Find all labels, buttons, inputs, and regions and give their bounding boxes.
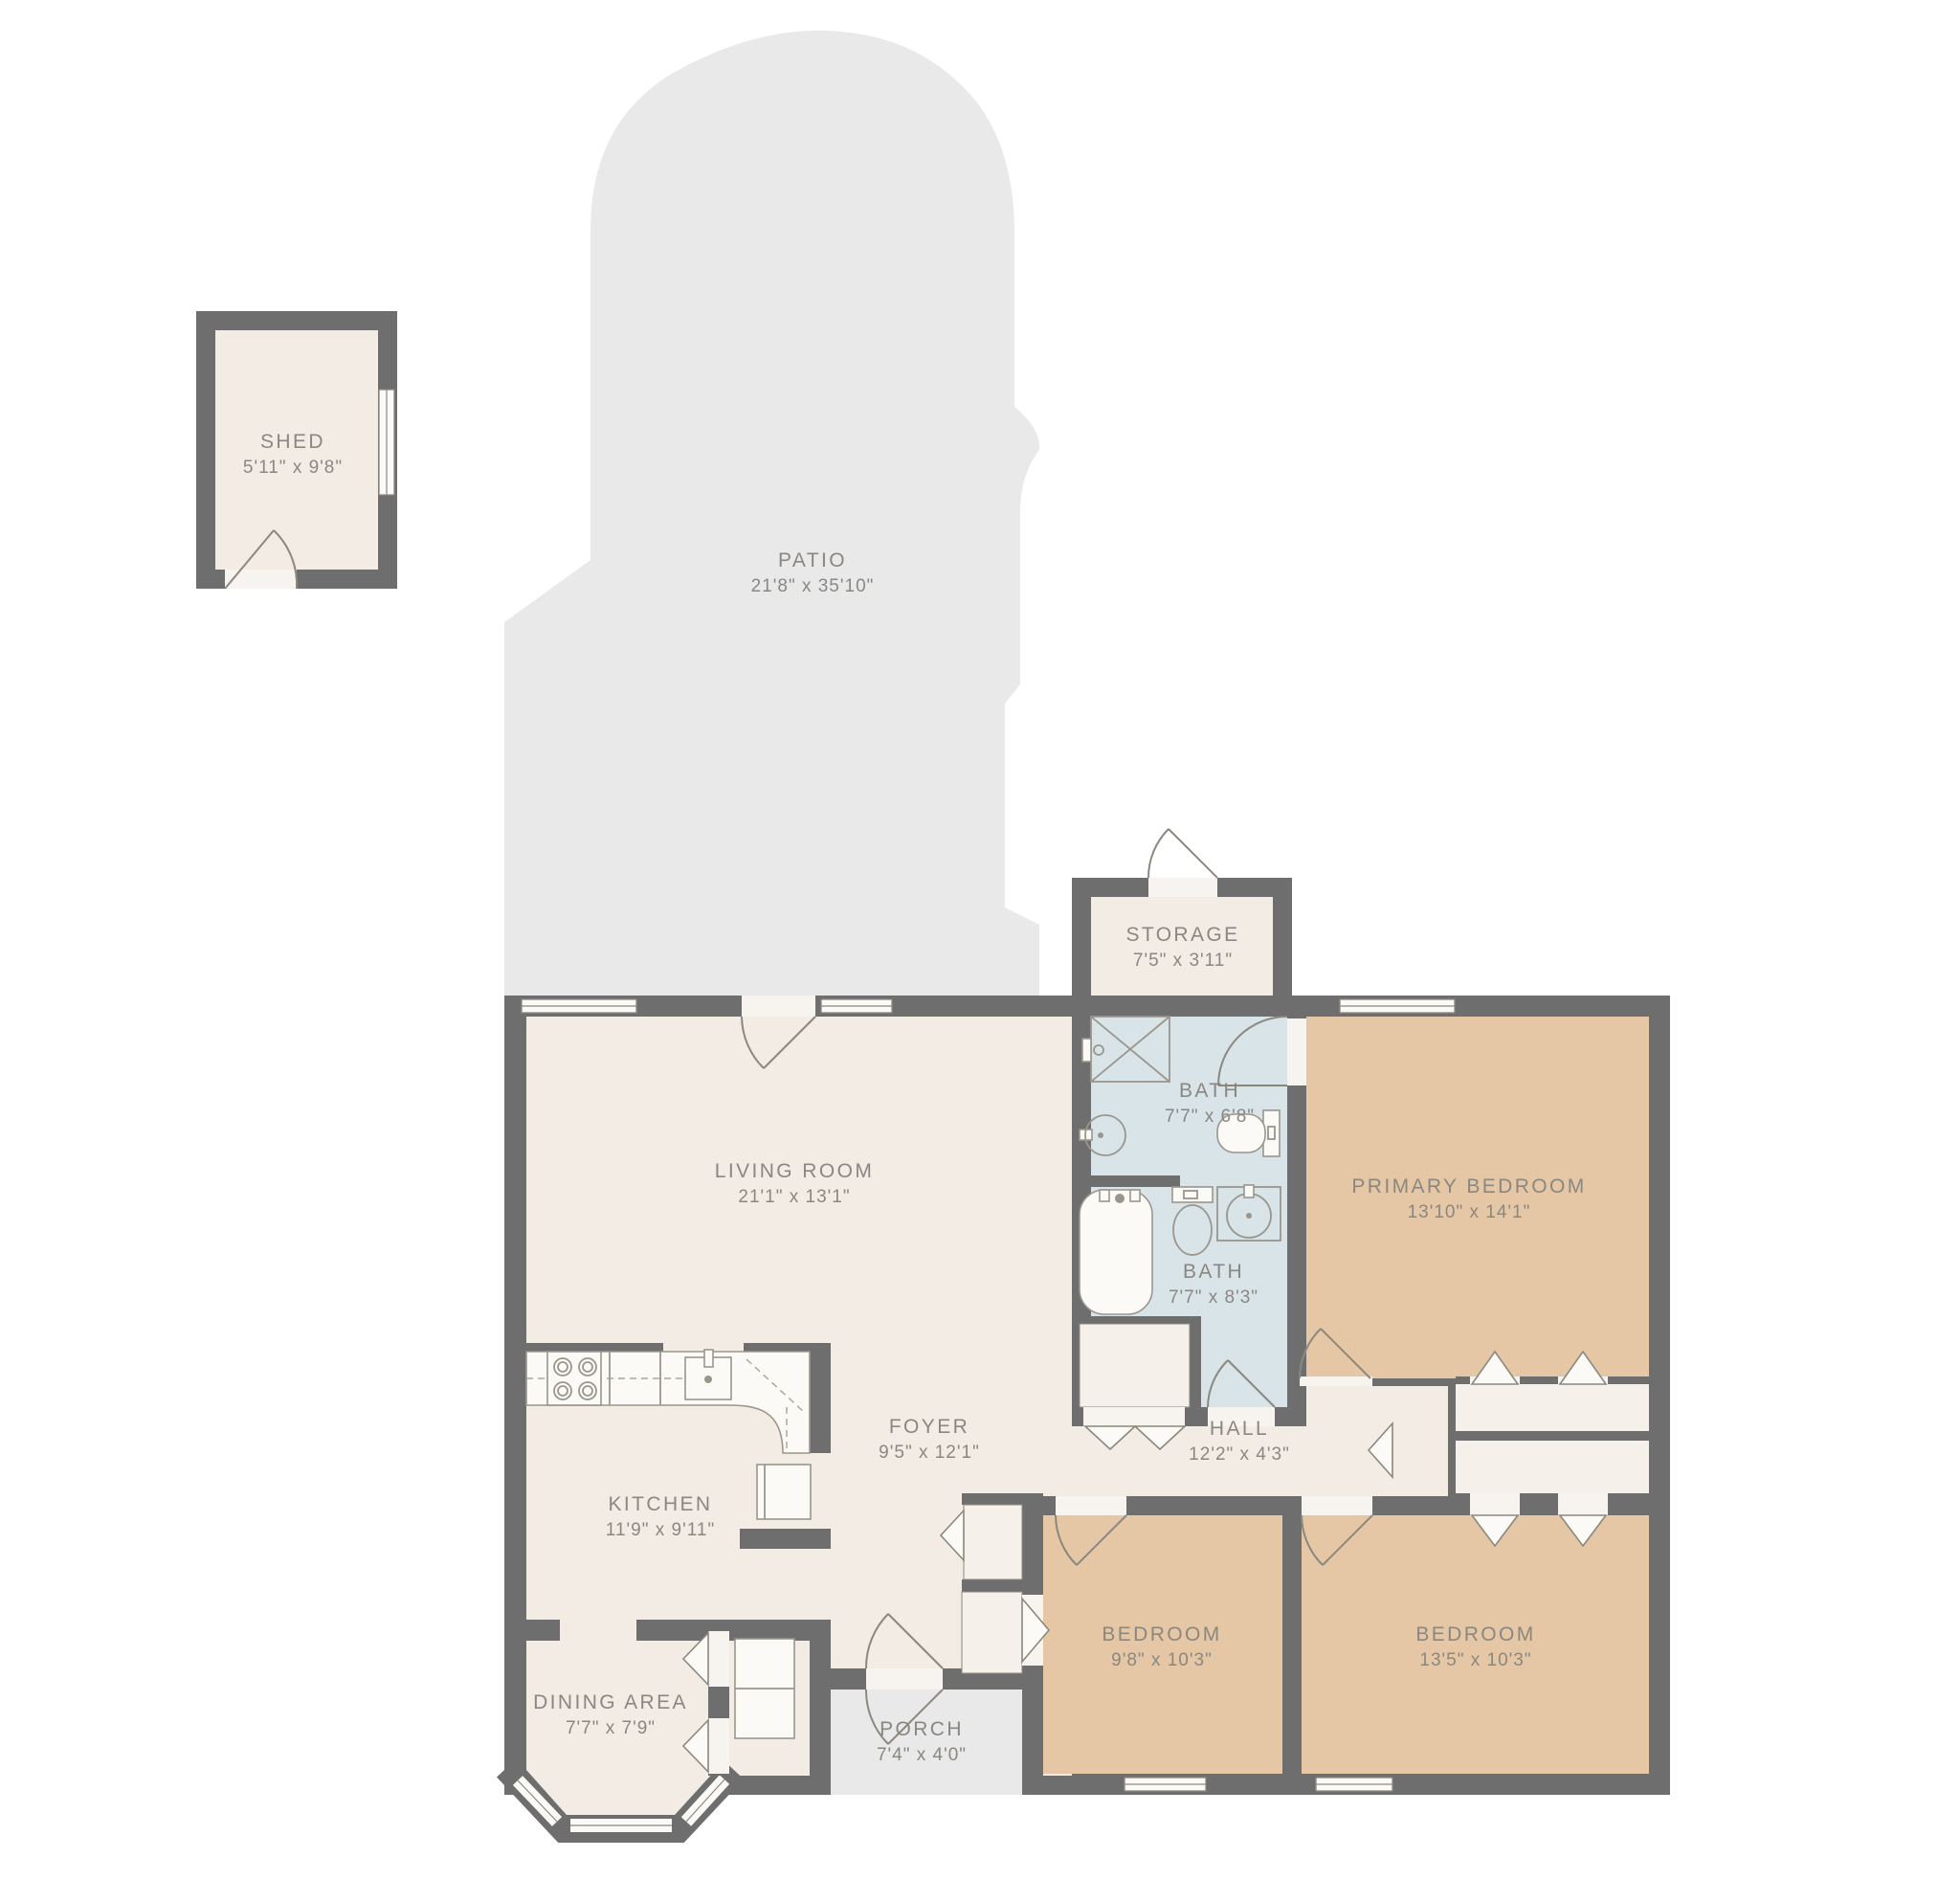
pantry-shelves-icon [735, 1639, 794, 1738]
room-label-bath1: BATH 7'7" x 6'8" [1165, 1078, 1255, 1130]
bathtub-icon [1080, 1190, 1152, 1314]
dining-top-wall [504, 1620, 831, 1641]
storage-door-icon [1148, 829, 1217, 897]
dining-opening [560, 1620, 636, 1641]
room-label-living-room: LIVING ROOM 21'1" x 13'1" [715, 1158, 874, 1210]
stove-icon [547, 1352, 601, 1405]
hall-closet-wall [1448, 1386, 1456, 1496]
room-label-kitchen: KITCHEN 11'9" x 9'11" [606, 1491, 715, 1543]
kitchen-lower-wall [740, 1529, 831, 1549]
hall-closet2-floor [1080, 1324, 1190, 1407]
room-label-hall: HALL 12'2" x 4'3" [1189, 1416, 1290, 1467]
primary-bedroom-window-icon [1340, 999, 1455, 1013]
room-label-primary-bedroom: PRIMARY BEDROOM 13'10" x 14'1" [1351, 1174, 1586, 1225]
room-label-shed: SHED 5'11" x 9'8" [243, 429, 343, 481]
fridge-icon [757, 1465, 811, 1519]
bedroom1-window-icon [1125, 1778, 1206, 1791]
floor-plan: SHED 5'11" x 9'8" PATIO 21'8" x 35'10" S… [0, 0, 1960, 1880]
bedroom1-closet-floor [962, 1592, 1022, 1673]
bedroom2-closet-floor [1456, 1441, 1649, 1493]
room-label-foyer: FOYER 9'5" x 12'1" [879, 1414, 980, 1466]
dining-bay [504, 1757, 736, 1832]
bedroom2-window-icon [1316, 1778, 1392, 1791]
room-label-dining-area: DINING AREA 7'7" x 7'9" [533, 1690, 688, 1741]
bath-divider-wall [1072, 1175, 1180, 1187]
living-room-window-icon [522, 999, 636, 1013]
room-label-bath2: BATH 7'7" x 8'3" [1169, 1259, 1258, 1310]
shed-window-icon [379, 390, 394, 495]
living-room-window2-icon [821, 999, 892, 1013]
floor-plan-drawing [0, 0, 1960, 1880]
closet-wall-3 [962, 1673, 1022, 1690]
foyer-closet-floor [964, 1505, 1022, 1579]
room-label-bedroom1: BEDROOM 9'8" x 10'3" [1102, 1622, 1221, 1673]
room-label-patio: PATIO 21'8" x 35'10" [751, 548, 875, 599]
hall-wall-stub [1043, 1496, 1058, 1515]
room-label-bedroom2: BEDROOM 13'5" x 10'3" [1415, 1622, 1535, 1673]
primary-closet-floor [1456, 1384, 1649, 1431]
closet-wall-1 [962, 1493, 1022, 1505]
room-label-storage: STORAGE 7'5" x 3'11" [1125, 922, 1239, 974]
room-label-porch: PORCH 7'4" x 4'0" [877, 1716, 967, 1768]
pantry-right-wall [810, 1620, 831, 1795]
kitchen-right-wall [810, 1343, 831, 1453]
patio-area [504, 31, 1039, 997]
closet-wall-2 [962, 1579, 1022, 1592]
bath-closet-right-wall [1190, 1316, 1201, 1420]
kitchen-sink-icon [685, 1350, 731, 1399]
